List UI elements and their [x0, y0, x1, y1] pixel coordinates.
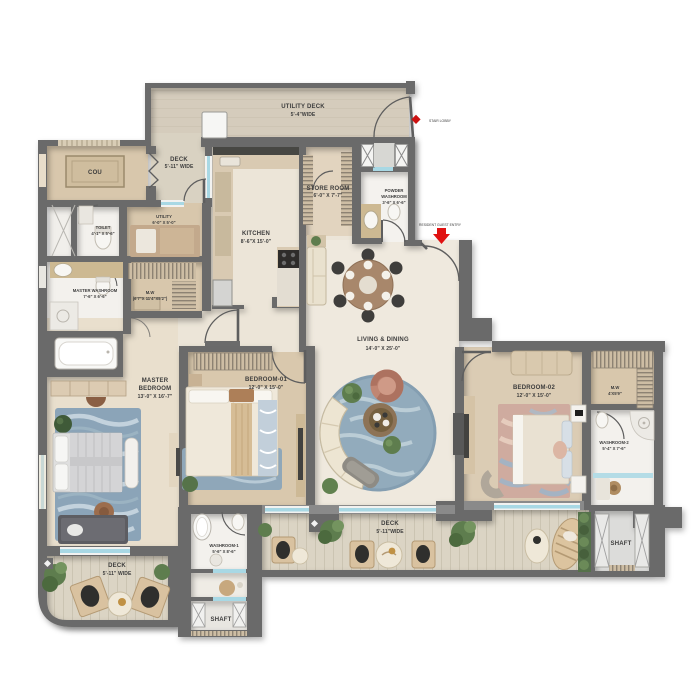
svg-text:4'X5'9": 4'X5'9" — [608, 391, 622, 396]
svg-text:UTILITY: UTILITY — [156, 214, 172, 219]
svg-text:12'-0" X 15'-0": 12'-0" X 15'-0" — [517, 393, 552, 399]
svg-text:6'-0" X 7'-7": 6'-0" X 7'-7" — [314, 193, 344, 199]
svg-text:M.W: M.W — [611, 385, 620, 390]
svg-text:DECK: DECK — [381, 521, 399, 527]
svg-text:RESIDENT GUEST ENTRY: RESIDENT GUEST ENTRY — [419, 223, 462, 227]
svg-text:6'-0" X 5'-0": 6'-0" X 5'-0" — [152, 220, 175, 225]
svg-text:(6'7"X 11'4"X5'2"): (6'7"X 11'4"X5'2") — [133, 296, 168, 301]
svg-text:POWDER: POWDER — [385, 188, 404, 193]
svg-text:5'-11" WIDE: 5'-11" WIDE — [103, 571, 132, 577]
svg-text:LIVING & DINING: LIVING & DINING — [357, 337, 409, 343]
svg-text:COU: COU — [88, 170, 102, 176]
svg-text:WASHROOM-1: WASHROOM-1 — [209, 543, 239, 548]
svg-text:KITCHEN: KITCHEN — [242, 231, 270, 237]
svg-text:SHAFT: SHAFT — [611, 541, 632, 547]
svg-text:WASHROOM-2: WASHROOM-2 — [599, 440, 629, 445]
svg-text:8'-6"X 15'-0": 8'-6"X 15'-0" — [241, 239, 272, 245]
svg-text:13'-0" X 16'-7": 13'-0" X 16'-7" — [138, 394, 173, 400]
svg-text:7'-6" X 6'-6": 7'-6" X 6'-6" — [83, 294, 106, 299]
svg-text:M.W: M.W — [146, 290, 155, 295]
svg-text:UTILITY DECK: UTILITY DECK — [281, 104, 325, 110]
svg-text:BEDROOM: BEDROOM — [139, 386, 172, 392]
svg-text:DECK: DECK — [108, 563, 126, 569]
svg-text:5'-4" X 7'-6": 5'-4" X 7'-6" — [602, 446, 625, 451]
svg-text:TOILET: TOILET — [96, 225, 111, 230]
svg-text:14'-0" X 25'-0": 14'-0" X 25'-0" — [366, 346, 401, 352]
svg-text:BEDROOM-01: BEDROOM-01 — [245, 377, 287, 383]
svg-text:12'-0" X 15'-0": 12'-0" X 15'-0" — [249, 385, 284, 391]
svg-text:MASTER WASHROOM: MASTER WASHROOM — [73, 288, 118, 293]
svg-text:BEDROOM-02: BEDROOM-02 — [513, 385, 555, 391]
svg-text:WASHROOM: WASHROOM — [381, 194, 407, 199]
svg-text:STAIR LOBBY: STAIR LOBBY — [429, 119, 452, 123]
svg-text:SHAFT: SHAFT — [211, 617, 232, 623]
svg-text:DECK: DECK — [170, 157, 188, 163]
svg-text:5'-6" X 8'-6": 5'-6" X 8'-6" — [212, 549, 235, 554]
svg-text:5'-11" WIDE: 5'-11" WIDE — [165, 164, 194, 170]
svg-text:4'-1" X 5'-6": 4'-1" X 5'-6" — [91, 231, 114, 236]
svg-text:3'-6" X 6'-6": 3'-6" X 6'-6" — [382, 200, 405, 205]
svg-text:STORE ROOM: STORE ROOM — [307, 186, 350, 192]
svg-text:5'-4"WIDE: 5'-4"WIDE — [291, 112, 316, 118]
svg-text:MASTER: MASTER — [142, 378, 169, 384]
svg-text:5'-11"WIDE: 5'-11"WIDE — [376, 529, 404, 535]
